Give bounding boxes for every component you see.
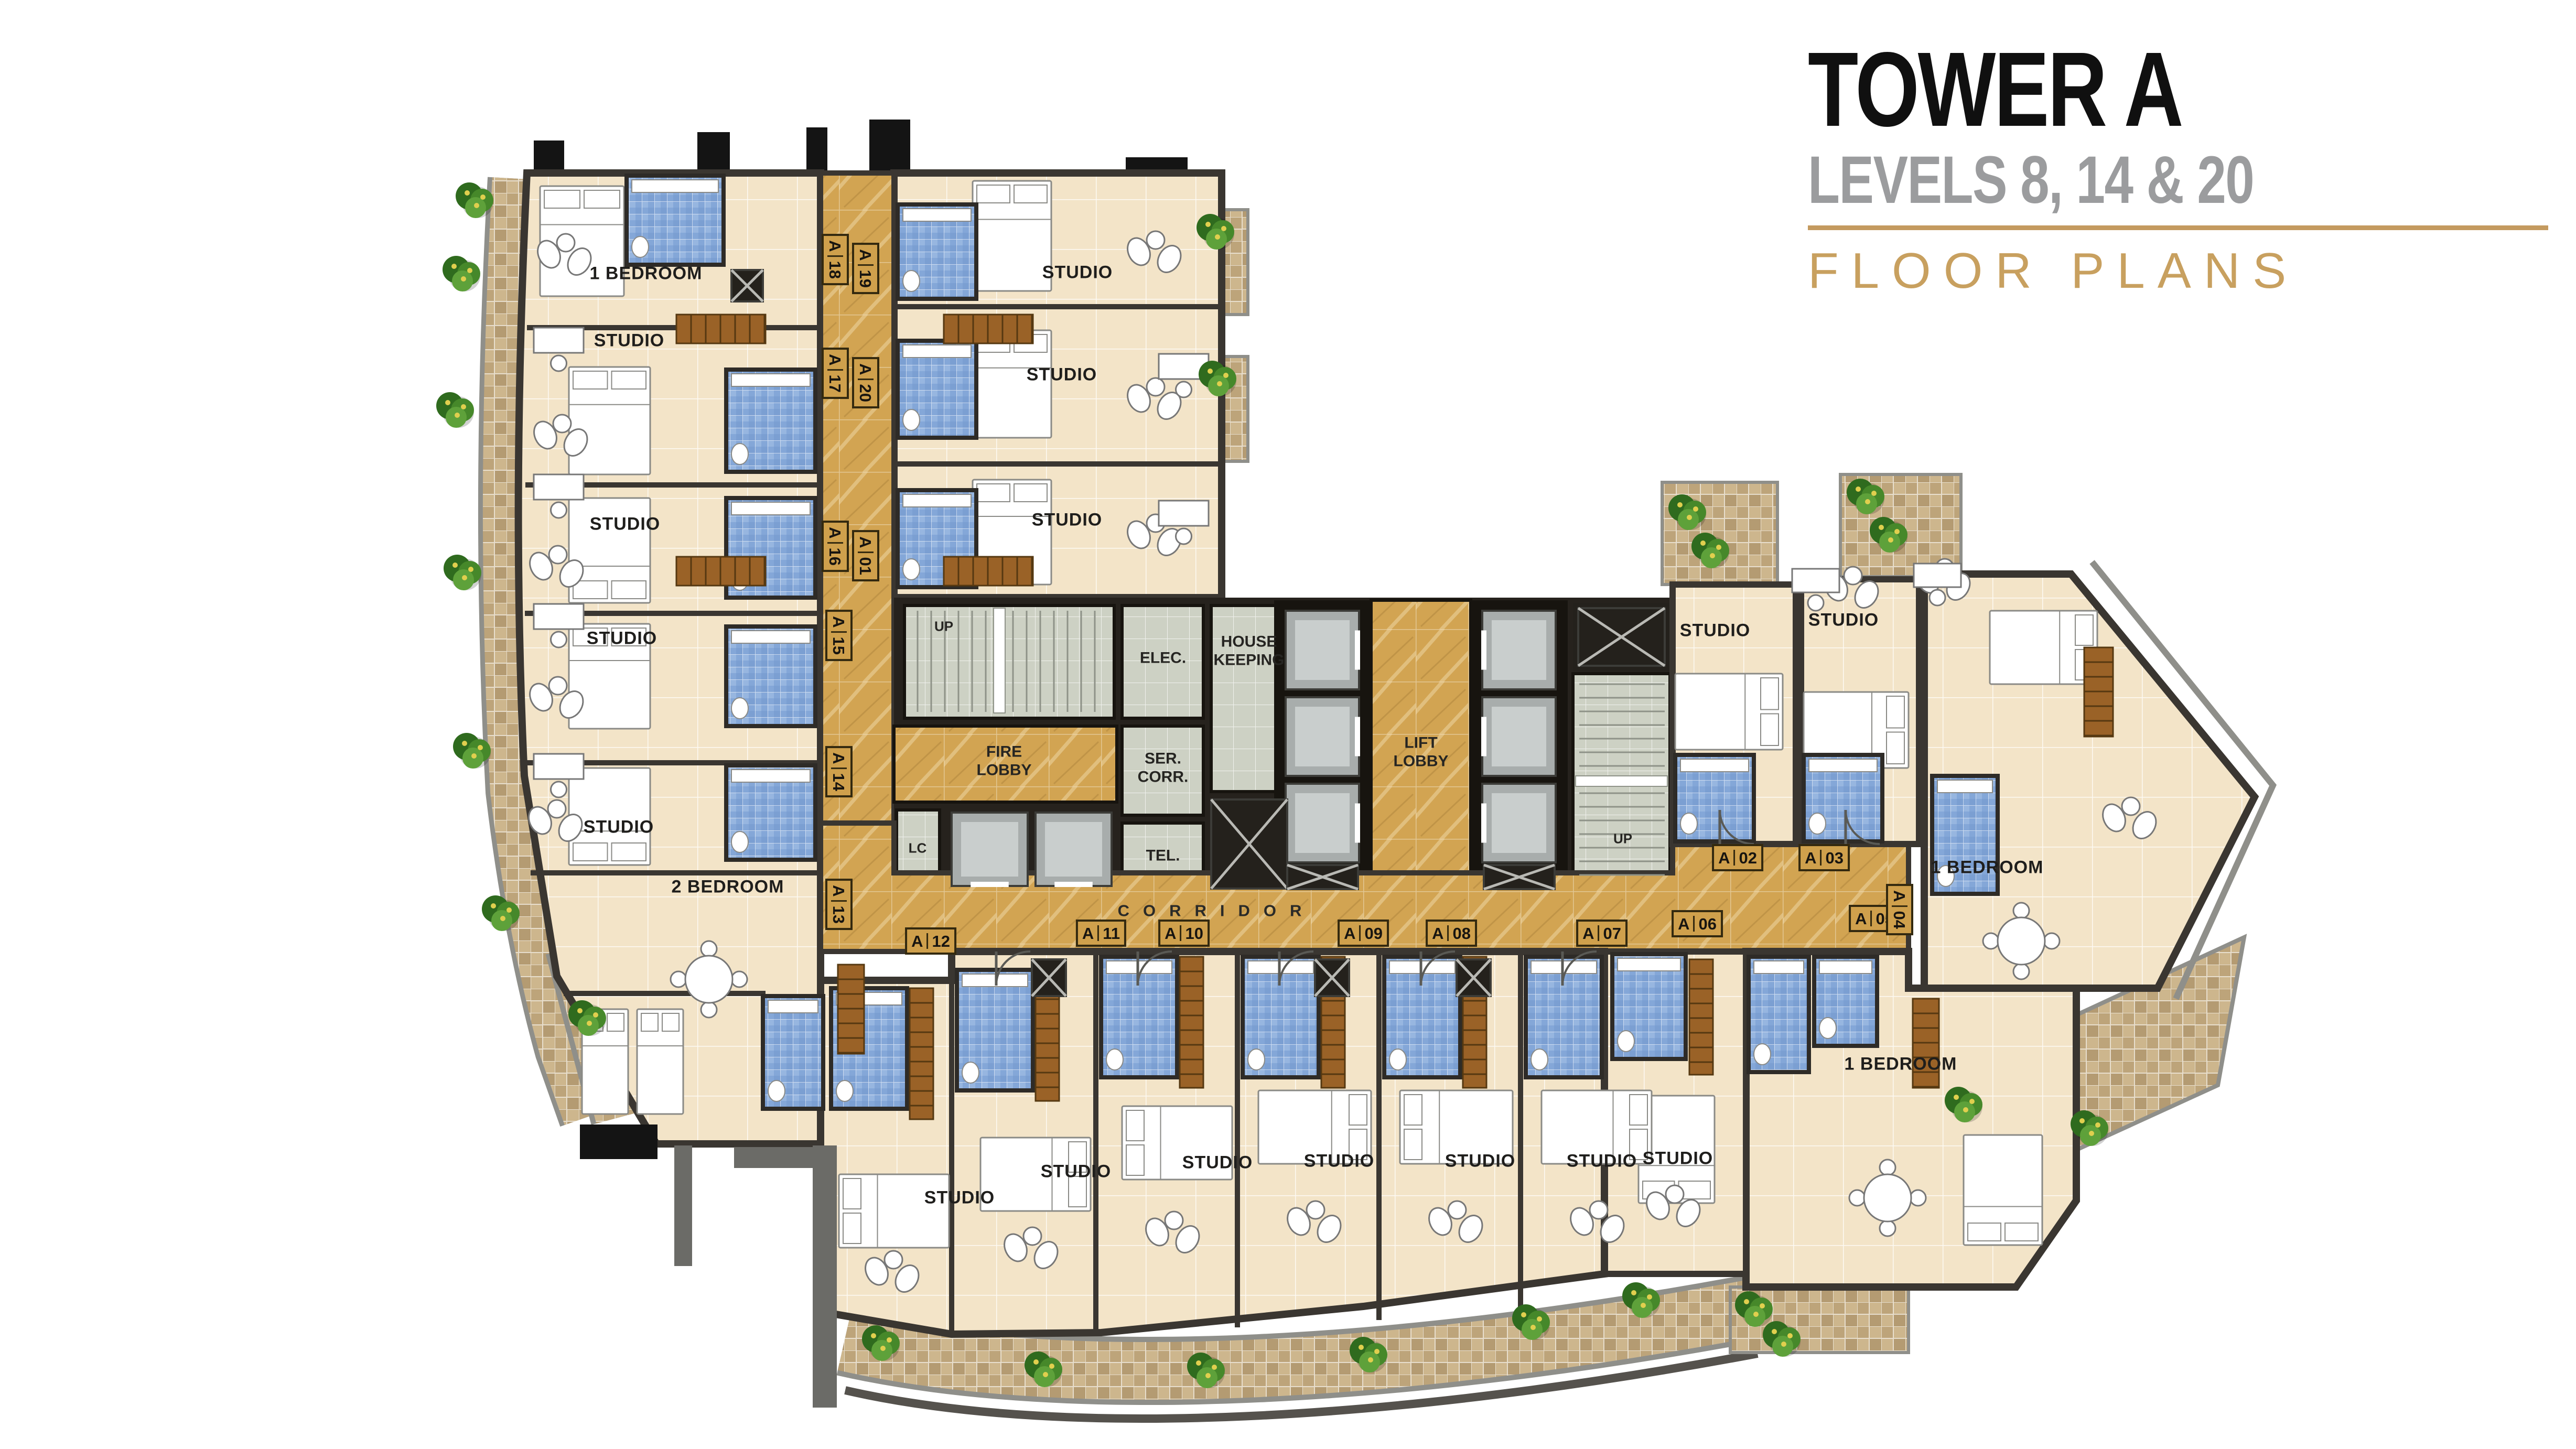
lift-car xyxy=(1286,697,1360,776)
room-label-studio-bottom-6: STUDIO xyxy=(1567,1151,1637,1172)
core-label-electrical: ELEC. xyxy=(1140,648,1186,667)
core-label-telephone: TEL. xyxy=(1146,846,1180,864)
shaft-x xyxy=(1211,799,1287,889)
room-label-studio-left-3: STUDIO xyxy=(587,629,657,649)
gold-rule xyxy=(1808,225,2548,230)
bathroom xyxy=(957,970,1033,1090)
double-bed xyxy=(1990,611,2097,684)
room-label-studio-right-2: STUDIO xyxy=(1808,610,1879,631)
unit-tag-a02: A02 xyxy=(1712,844,1763,871)
bathroom xyxy=(1749,957,1809,1072)
shaft-x xyxy=(1457,959,1491,996)
double-bed xyxy=(569,768,650,865)
double-bed xyxy=(839,1174,949,1248)
unit-tag-a20: A20 xyxy=(852,357,879,408)
room-label-one-bedroom-bottom: 1 BEDROOM xyxy=(1845,1054,1957,1075)
bathroom xyxy=(726,370,815,472)
lift-car xyxy=(1481,611,1556,689)
bathroom xyxy=(726,626,815,726)
room-label-studio-upper-2: STUDIO xyxy=(1027,365,1097,385)
unit-tag-a12: A12 xyxy=(905,927,956,955)
core-label-up-right: UP xyxy=(1613,831,1632,847)
toilet xyxy=(903,271,920,291)
lift-car xyxy=(1481,784,1556,862)
lift-car xyxy=(1036,813,1112,887)
page-caption: FLOOR PLANS xyxy=(1808,246,2558,296)
room-label-studio-left-4: STUDIO xyxy=(584,817,654,838)
wardrobe xyxy=(944,315,1033,343)
unit-tag-a08: A08 xyxy=(1426,920,1477,947)
core-label-housekeeping: HOUSE KEEPING xyxy=(1213,633,1284,670)
toilet xyxy=(768,1080,785,1101)
toilet xyxy=(1106,1049,1123,1070)
wardrobe xyxy=(676,315,766,343)
room-label-studio-left-1: STUDIO xyxy=(594,331,664,351)
bathroom xyxy=(898,341,976,438)
title-block: TOWER A LEVELS 8, 14 & 20 FLOOR PLANS xyxy=(1808,38,2558,296)
wardrobe xyxy=(676,557,766,586)
room-label-one-bedroom-right: 1 BEDROOM xyxy=(1931,858,2044,878)
toilet xyxy=(962,1062,979,1083)
bathroom xyxy=(627,176,724,265)
toilet xyxy=(632,236,649,257)
wardrobe xyxy=(1180,957,1203,1088)
page-subtitle: LEVELS 8, 14 & 20 xyxy=(1808,147,2392,214)
double-bed xyxy=(973,181,1051,291)
bathroom xyxy=(1804,755,1882,841)
toilet xyxy=(731,444,748,464)
floor-plan-canvas: TOWER A LEVELS 8, 14 & 20 FLOOR PLANS 1 … xyxy=(0,0,2576,1449)
unit-tag-a06: A06 xyxy=(1672,910,1723,937)
toilet xyxy=(836,1080,853,1101)
room-label-studio-upper-3: STUDIO xyxy=(1032,510,1102,531)
double-bed xyxy=(1675,674,1783,750)
unit-tag-a03: A03 xyxy=(1798,844,1850,871)
toilet xyxy=(1248,1049,1265,1070)
room-label-studio-upper-1: STUDIO xyxy=(1042,263,1113,283)
bathroom xyxy=(726,765,815,860)
core-label-luggage-closet: LC xyxy=(909,840,927,857)
core-label-lift-lobby: LIFT LOBBY xyxy=(1394,734,1449,771)
unit-tag-a18: A18 xyxy=(822,234,849,285)
unit-tag-a15: A15 xyxy=(825,610,853,661)
bathroom xyxy=(763,996,823,1109)
shaft-x xyxy=(1484,865,1555,889)
unit-tag-a13: A13 xyxy=(825,879,853,930)
toilet xyxy=(1680,813,1697,834)
wardrobe xyxy=(2084,647,2113,737)
unit-tag-a01: A01 xyxy=(852,530,879,581)
lift-car xyxy=(1481,697,1556,776)
pier-small xyxy=(674,1145,692,1266)
wardrobe xyxy=(838,965,864,1054)
shrub-plant xyxy=(436,392,474,428)
step-block xyxy=(580,1124,658,1159)
shaft-x xyxy=(1032,959,1066,996)
wardrobe xyxy=(1913,999,1939,1088)
toilet xyxy=(1531,1049,1548,1070)
shaft-x xyxy=(1287,865,1358,889)
unit-tag-a17: A17 xyxy=(822,348,849,399)
lift-car xyxy=(1286,611,1360,689)
page-title: TOWER A xyxy=(1808,38,2392,142)
unit-tag-a04: A04 xyxy=(1886,884,1913,935)
double-bed xyxy=(1964,1135,2042,1245)
pier-vertical xyxy=(813,1145,837,1408)
unit-tag-a09: A09 xyxy=(1338,920,1389,947)
room-label-two-bedroom: 2 BEDROOM xyxy=(672,877,784,897)
bathroom xyxy=(1814,957,1877,1046)
toilet xyxy=(731,831,748,852)
room-label-studio-right-1: STUDIO xyxy=(1680,621,1750,641)
shaft-x xyxy=(1578,608,1665,666)
room-label-studio-left-2: STUDIO xyxy=(590,514,660,535)
core-label-up-left: UP xyxy=(934,619,953,635)
wardrobe xyxy=(910,988,933,1119)
toilet xyxy=(1754,1044,1771,1065)
bathroom xyxy=(1675,755,1754,841)
wardrobe xyxy=(944,557,1033,586)
core-label-service-corridor: SER. CORR. xyxy=(1138,750,1189,787)
room-label-studio-bottom-1: STUDIO xyxy=(924,1188,995,1208)
room-label-studio-bottom-2: STUDIO xyxy=(1041,1162,1111,1182)
shaft-x xyxy=(731,270,763,301)
room-label-studio-bottom-3: STUDIO xyxy=(1182,1153,1253,1173)
unit-tag-a14: A14 xyxy=(825,746,853,797)
room-label-studio-bottom-5: STUDIO xyxy=(1445,1151,1515,1172)
toilet xyxy=(731,698,748,719)
toilet xyxy=(903,409,920,430)
toilet xyxy=(1389,1049,1406,1070)
unit-tag-a10: A10 xyxy=(1158,920,1210,947)
room-label-studio-bottom-4: STUDIO xyxy=(1304,1151,1374,1172)
bathroom xyxy=(1612,954,1686,1059)
unit-tag-a07: A07 xyxy=(1576,920,1627,947)
toilet xyxy=(903,559,920,580)
toilet xyxy=(1809,813,1826,834)
toilet xyxy=(1618,1031,1634,1052)
wardrobe xyxy=(1689,959,1713,1075)
pier-cap xyxy=(734,1147,814,1168)
unit-tag-a16: A16 xyxy=(822,521,849,572)
core-label-fire-lobby: FIRE LOBBY xyxy=(977,743,1032,780)
unit-tag-a11: A11 xyxy=(1076,920,1126,947)
shaft-x xyxy=(1315,959,1349,996)
lift-car xyxy=(952,813,1028,887)
shrub-plant xyxy=(443,256,480,291)
room-label-studio-bottom-right: STUDIO xyxy=(1643,1149,1713,1169)
room-label-one-bedroom-top-left: 1 BEDROOM xyxy=(590,264,703,284)
toilet xyxy=(1819,1018,1836,1039)
bathroom xyxy=(898,204,976,299)
double-bed xyxy=(637,1009,683,1114)
lift-car xyxy=(1286,784,1360,862)
unit-tag-a19: A19 xyxy=(852,243,879,294)
corridor-label: CORRIDOR xyxy=(1118,902,1316,921)
shrub-plant xyxy=(444,555,481,590)
double-bed xyxy=(569,367,650,474)
